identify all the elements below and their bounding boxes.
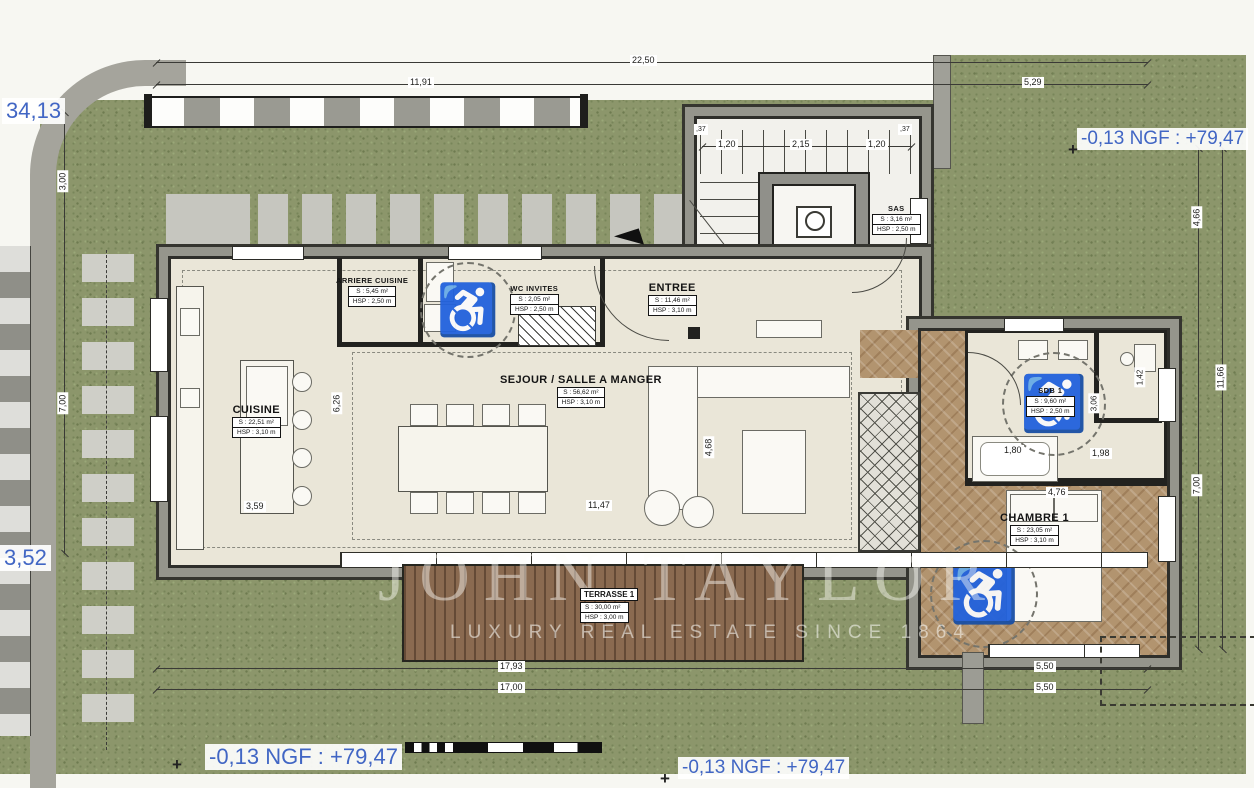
stool-4: [292, 486, 312, 506]
dim-value: 3,00: [57, 171, 68, 193]
dim-value: 1,20: [716, 139, 738, 150]
dim-value: 1,20: [866, 139, 888, 150]
room-label-sejour: SEJOUR / SALLE A MANGER S : 56,62 m²HSP …: [500, 374, 662, 409]
window-kitchen-2: [150, 416, 168, 502]
window-north-2: [448, 246, 542, 260]
room-label-wc-invites: WC INVITES S : 2,05 m²HSP : 2,50 m: [510, 284, 559, 316]
boundary-mark: 34,13: [2, 98, 65, 124]
dim-value: 5,50: [1034, 661, 1056, 672]
boundary-dashed-line: [106, 250, 107, 750]
dim-value: 11,91: [408, 77, 434, 88]
elevator-circle: [805, 211, 825, 231]
elevation-mark-bottom-left: -0,13 NGF : +79,47: [205, 744, 402, 770]
dim-value: 1,80: [1002, 445, 1024, 456]
pouf-1: [644, 490, 680, 526]
chair: [518, 492, 546, 514]
elevation-mark-top-right: -0,13 NGF : +79,47: [1077, 128, 1248, 150]
partition-wc: [1094, 418, 1162, 423]
room-label-entree: ENTREE S : 11,46 m²HSP : 3,10 m: [648, 282, 697, 317]
dim-value: 4,66: [1191, 207, 1202, 229]
chair: [446, 492, 474, 514]
driveway-wall: [148, 96, 588, 128]
floor-plan-canvas: ♿ ♿ ♿ JOHN TAYLOR LUXURY REAL ESTATE SIN…: [0, 0, 1254, 788]
basement-stair-hatch: [858, 392, 920, 552]
dim-value: ,37: [898, 124, 912, 135]
stepping-stones: [82, 254, 134, 732]
wall-post-right: [580, 94, 588, 128]
wall-post-left: [144, 94, 152, 128]
sofa-chaise: [742, 430, 806, 514]
survey-cross-icon: +: [1068, 145, 1078, 155]
dim-value: 5,29: [1022, 77, 1044, 88]
stool-2: [292, 410, 312, 430]
boundary-mark: 3,52: [0, 545, 51, 571]
column: [688, 327, 700, 339]
dim-line-right-2: [1222, 148, 1223, 650]
watermark-brand: JOHN TAYLOR: [378, 538, 999, 618]
dim-value: 4,68: [703, 437, 714, 459]
tv-console: [756, 320, 822, 338]
chair: [446, 404, 474, 426]
dim-value: 4,76: [1046, 487, 1068, 498]
window-east-1: [1158, 368, 1176, 422]
dim-line-top-2: [156, 84, 1148, 85]
room-label-cuisine: CUISINE S : 22,51 m²HSP : 3,10 m: [232, 404, 281, 439]
chair: [410, 492, 438, 514]
dim-value: 22,50: [630, 55, 657, 66]
stair-treads-left: [700, 174, 758, 268]
dim-value: 11,66: [1215, 365, 1226, 391]
dining-table: [398, 426, 548, 492]
dim-value: 17,00: [498, 682, 525, 693]
pool-dashed-outline: [1100, 636, 1254, 706]
kitchen-sink: [180, 308, 200, 336]
wall-stub: [933, 55, 951, 169]
dim-value: 7,00: [57, 393, 68, 415]
pouf-2: [682, 496, 714, 528]
window-north-1: [232, 246, 304, 260]
dim-value: 1,42: [1134, 368, 1145, 388]
room-label-terrasse1: TERRASSE 1 S : 30,00 m²HSP : 3,00 m: [580, 584, 638, 624]
corridor-link: [860, 330, 918, 378]
window-east-2: [1158, 496, 1176, 562]
survey-cross-icon: +: [172, 760, 182, 770]
dim-value: 2,15: [790, 139, 812, 150]
room-label-arriere-cuisine: ARRIERE CUISINE S : 5,45 m²HSP : 2,50 m: [336, 276, 408, 308]
garden-path: [962, 652, 984, 724]
elevation-mark-bottom-right: -0,13 NGF : +79,47: [678, 757, 849, 779]
wheelchair-icon: ♿: [420, 262, 516, 358]
dim-value: 11,47: [586, 500, 612, 511]
stool-3: [292, 448, 312, 468]
left-paver-strip: [0, 246, 31, 736]
kitchen-appliance: [180, 388, 200, 408]
shower-head: [1120, 352, 1134, 366]
dim-value: ,37: [694, 124, 708, 135]
dim-line-bottom-1: [156, 668, 1148, 669]
room-label-chambre1: CHAMBRE 1 S : 23,05 m²HSP : 3,10 m: [1000, 512, 1069, 547]
parking-pad: [166, 194, 250, 248]
dim-value: 7,00: [1191, 475, 1202, 497]
dim-value: 17,93: [498, 661, 525, 672]
stair-treads-top: [700, 130, 912, 174]
paper-top-right: [950, 0, 1254, 55]
survey-cross-icon: +: [660, 774, 670, 784]
room-label-sas: SAS S : 3,16 m²HSP : 2,50 m: [872, 204, 921, 236]
dim-value: 6,26: [331, 393, 342, 415]
dim-line-bottom-2: [156, 689, 1148, 690]
window-bath: [1004, 318, 1064, 332]
window-kitchen-1: [150, 298, 168, 372]
dim-value: 1,98: [1090, 448, 1112, 459]
dim-value: 3,59: [244, 501, 266, 512]
scale-bar: [405, 742, 602, 753]
paper-bottom-edge: [0, 774, 1254, 788]
chair: [410, 404, 438, 426]
stool-1: [292, 372, 312, 392]
dim-value: 5,50: [1034, 682, 1056, 693]
chair: [482, 492, 510, 514]
room-label-sdb1: SDB 1 S : 9,60 m²HSP : 2,50 m: [1026, 386, 1075, 418]
dim-value: 3,06: [1088, 394, 1099, 414]
watermark-tagline: LUXURY REAL ESTATE SINCE 1864: [450, 622, 971, 644]
